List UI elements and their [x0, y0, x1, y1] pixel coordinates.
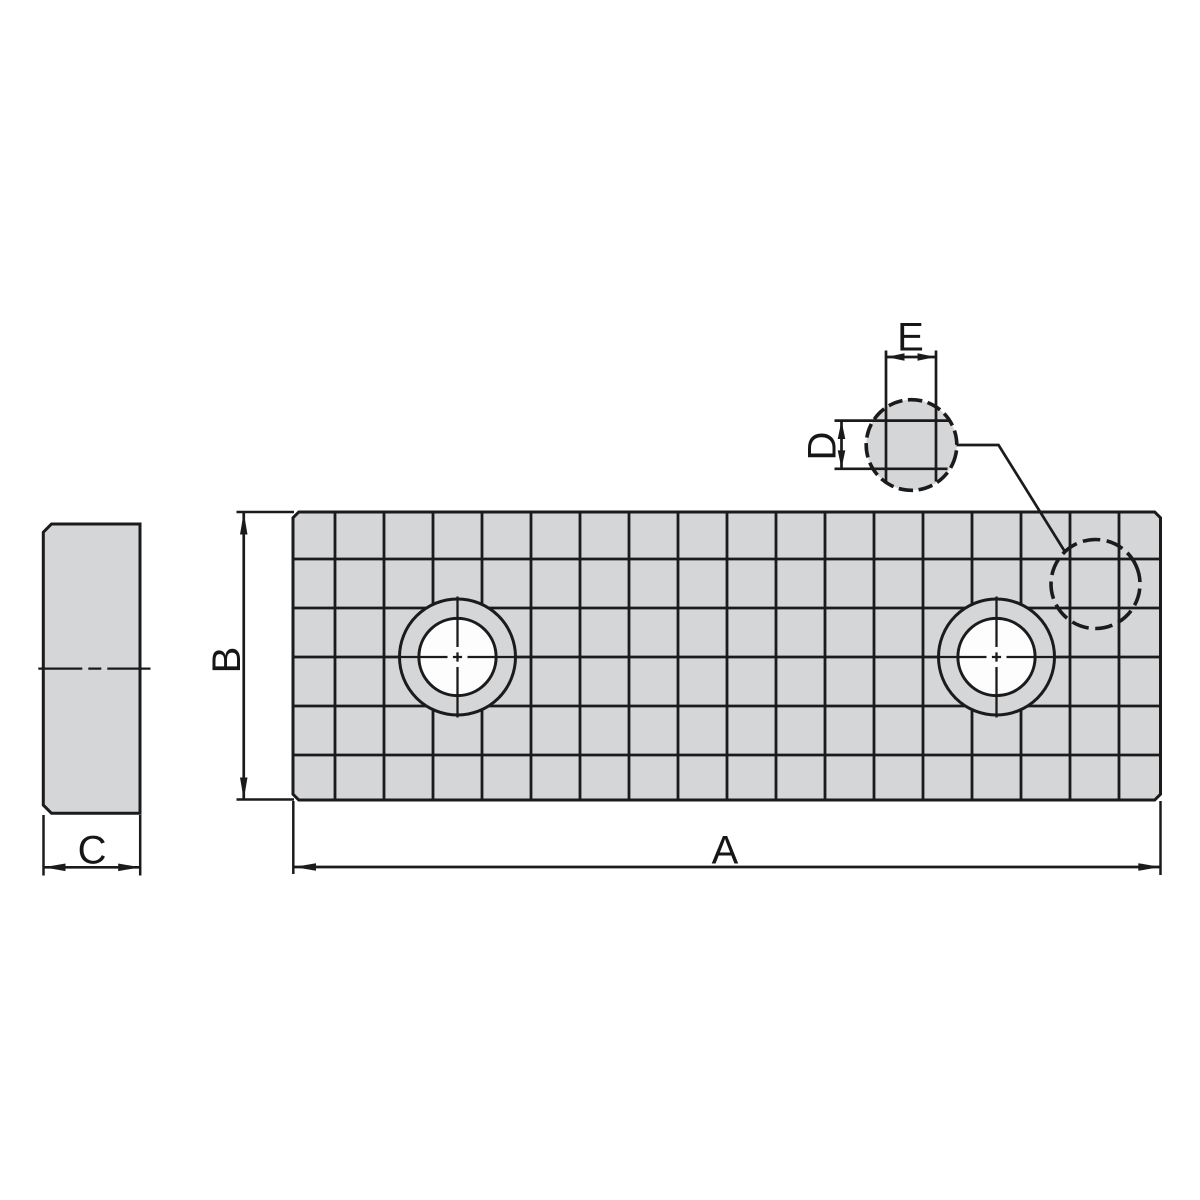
svg-text:C: C — [78, 828, 107, 872]
svg-text:B: B — [205, 647, 249, 674]
svg-text:D: D — [801, 432, 845, 461]
svg-text:E: E — [897, 315, 924, 359]
svg-text:A: A — [712, 828, 739, 872]
